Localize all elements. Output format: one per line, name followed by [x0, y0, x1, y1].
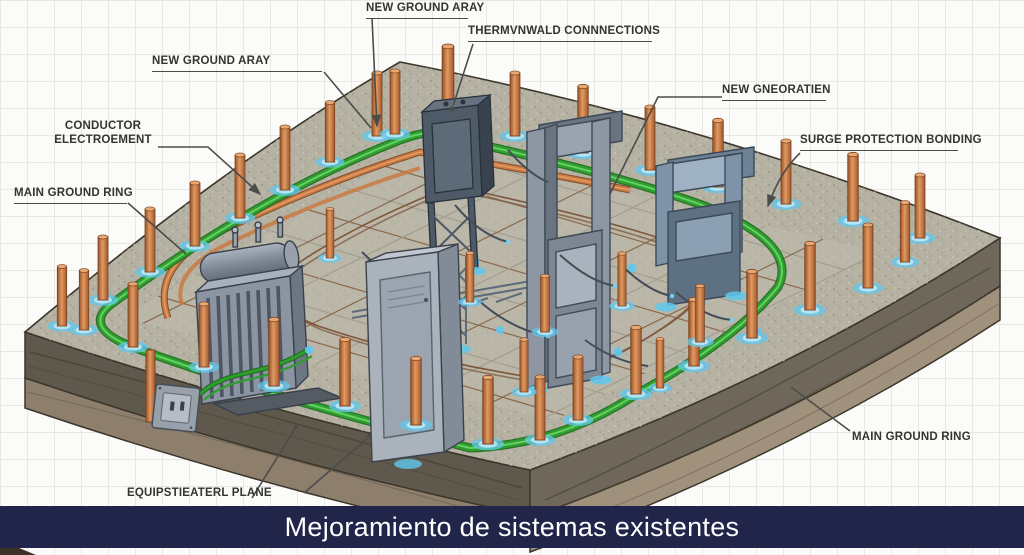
label-conductor-line2: ELECTROEMENT: [54, 134, 152, 146]
label-new-generation: NEW GNEORATIEN: [722, 84, 826, 101]
label-new-ground-array-top: NEW GROUND ARAY: [366, 2, 468, 19]
label-main-ground-ring-left: MAIN GROUND RING: [14, 187, 127, 204]
portal-frame-center: [526, 111, 622, 395]
label-main-ground-ring-right: MAIN GROUND RING: [852, 431, 971, 445]
banner-title: Mejoramiento de sistemas existentes: [285, 512, 740, 543]
label-new-ground-array-left: NEW GROUND ARAY: [152, 55, 322, 72]
title-banner: Mejoramiento de sistemas existentes: [0, 506, 1024, 548]
outlet-box: [152, 384, 200, 432]
diagram-svg: [0, 0, 1024, 555]
label-thermoweld-connections: THERMVNWALD CONNNECTIONS: [468, 25, 652, 42]
label-conductor-electrode: CONDUCTOR ELECTROEMENT: [50, 119, 156, 148]
label-equipotential-plane: EQUIPSTIEATERL PLANE: [127, 487, 272, 501]
grounding-system-diagram-page: NEW GROUND ARAY THERMVNWALD CONNNECTIONS…: [0, 0, 1024, 555]
label-conductor-line1: CONDUCTOR: [65, 120, 141, 132]
label-surge-protection-bonding: SURGE PROTECTION BONDING: [800, 134, 958, 151]
